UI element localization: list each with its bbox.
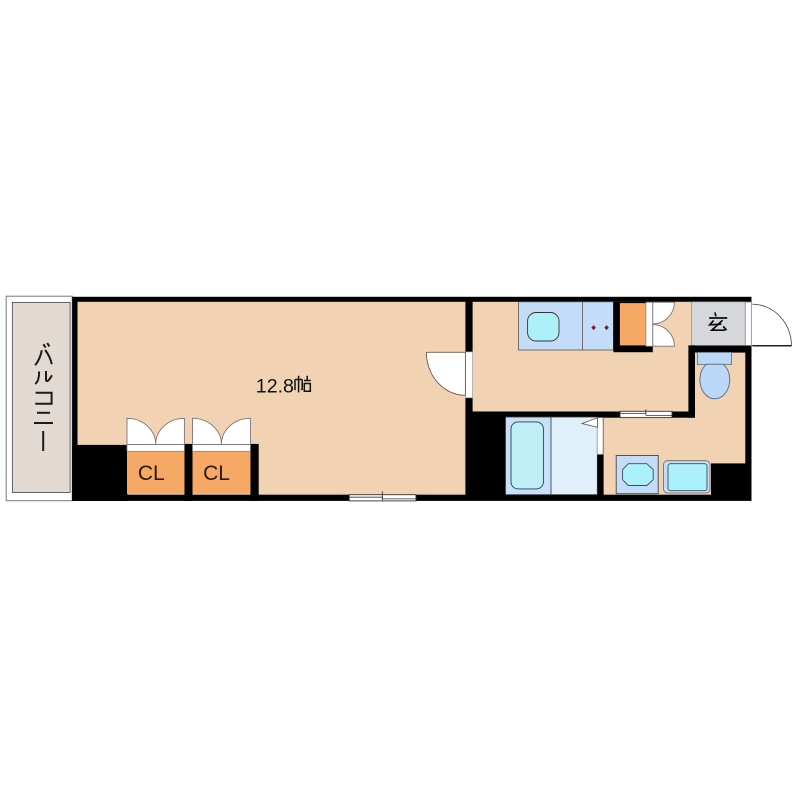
svg-text:CL: CL bbox=[203, 462, 230, 485]
svg-text:12.8: 12.8 bbox=[256, 375, 294, 397]
svg-text:CL: CL bbox=[138, 462, 165, 485]
